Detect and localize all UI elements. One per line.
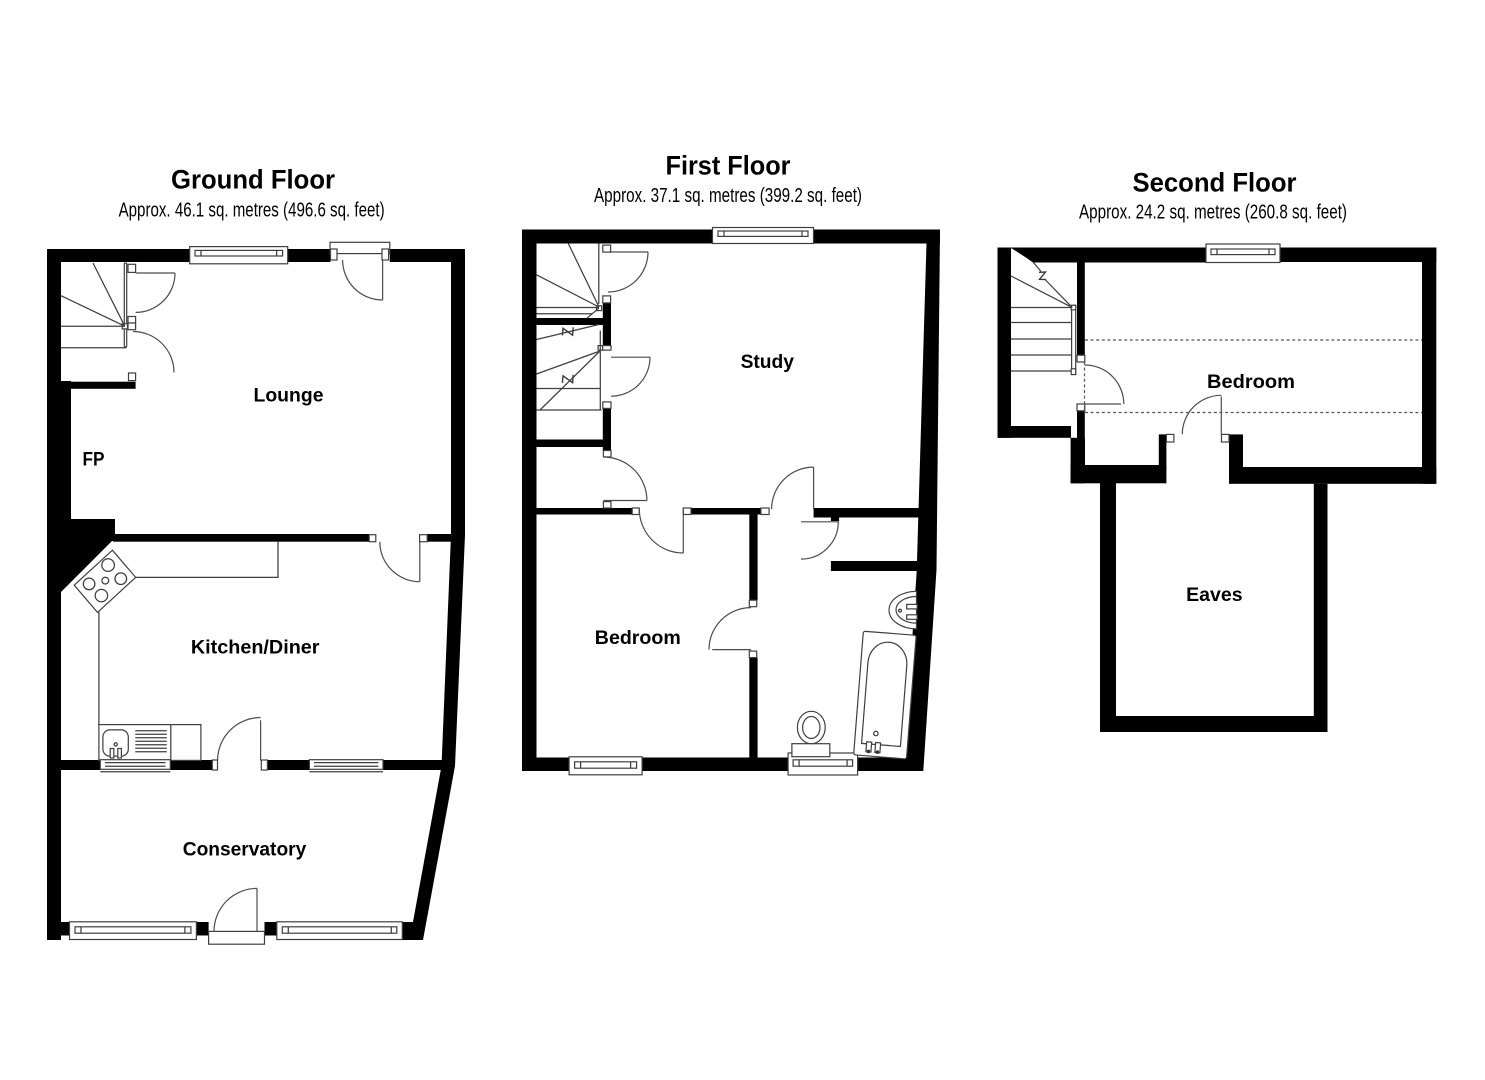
svg-text:Second Floor: Second Floor <box>1133 167 1297 197</box>
svg-text:Approx. 46.1 sq. metres (496.6: Approx. 46.1 sq. metres (496.6 sq. feet) <box>119 200 385 222</box>
svg-text:First Floor: First Floor <box>666 151 791 181</box>
svg-text:Kitchen/Diner: Kitchen/Diner <box>191 637 320 659</box>
svg-text:Conservatory: Conservatory <box>183 839 307 861</box>
svg-text:Lounge: Lounge <box>254 385 324 407</box>
svg-text:Approx. 24.2 sq. metres (260.8: Approx. 24.2 sq. metres (260.8 sq. feet) <box>1079 202 1347 224</box>
svg-text:Bedroom: Bedroom <box>595 627 681 649</box>
svg-text:FP: FP <box>83 449 105 471</box>
svg-text:Ground Floor: Ground Floor <box>171 164 335 194</box>
svg-text:Study: Study <box>741 351 794 373</box>
svg-text:Bedroom: Bedroom <box>1207 371 1295 393</box>
svg-text:Eaves: Eaves <box>1186 584 1243 606</box>
svg-text:Approx. 37.1 sq. metres (399.2: Approx. 37.1 sq. metres (399.2 sq. feet) <box>594 185 862 207</box>
